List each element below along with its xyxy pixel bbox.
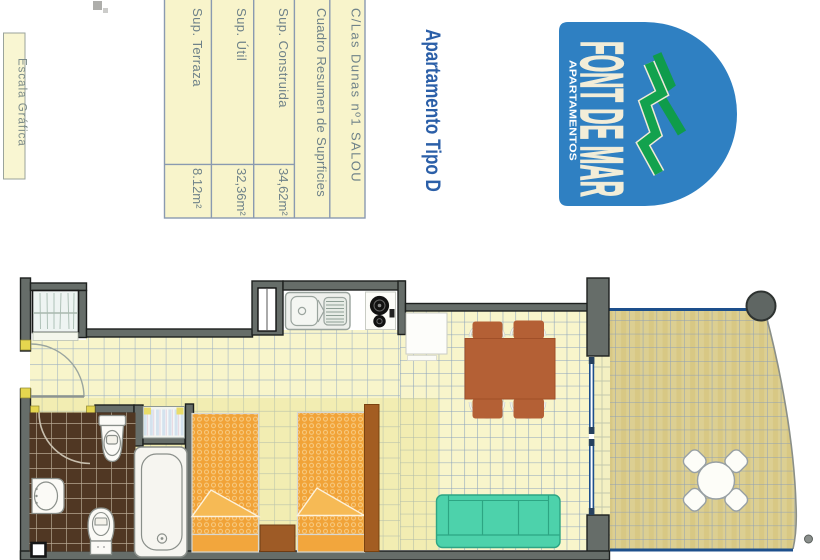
svg-text:Escala Gráfica: Escala Gráfica	[16, 58, 28, 147]
svg-text:Apartamento Tipo D: Apartamento Tipo D	[420, 29, 444, 192]
svg-text:32,36m²: 32,36m²	[234, 168, 249, 216]
svg-text:Sup. Terraza: Sup. Terraza	[190, 8, 205, 87]
svg-text:34,62m²: 34,62m²	[276, 168, 291, 216]
svg-text:Sup. Útil: Sup. Útil	[234, 8, 249, 61]
svg-text:FONT DE MAR: FONT DE MAR	[568, 41, 636, 197]
svg-text:C/Las Dunas nº1 SALOU: C/Las Dunas nº1 SALOU	[349, 8, 364, 183]
svg-text:Sup. Construida: Sup. Construida	[276, 8, 291, 108]
svg-text:Cuadro Resumen de Suprficies: Cuadro Resumen de Suprficies	[314, 8, 329, 197]
svg-text:8.12m²: 8.12m²	[190, 168, 205, 209]
svg-text:APARTAMENTOS: APARTAMENTOS	[567, 60, 578, 161]
